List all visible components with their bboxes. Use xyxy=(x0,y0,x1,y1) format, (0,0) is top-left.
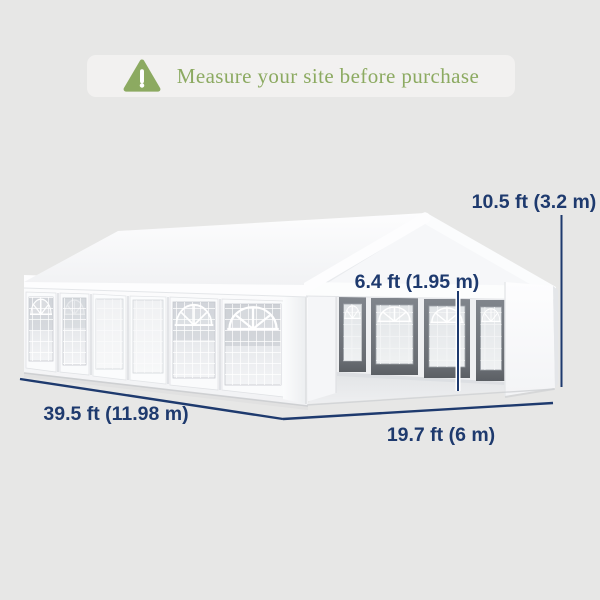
front-left-corner-post xyxy=(283,287,306,404)
dimension-label-side-height: 6.4 ft (1.95 m) xyxy=(355,271,480,293)
dimension-line-width xyxy=(283,403,553,419)
product-dimension-diagram: Measure your site before purchase xyxy=(0,0,600,600)
dimension-label-length: 39.5 ft (11.98 m) xyxy=(43,403,188,425)
dimension-label-total-height: 10.5 ft (3.2 m) xyxy=(472,191,597,213)
dimension-label-width: 19.7 ft (6 m) xyxy=(387,424,495,446)
front-right-door-panel xyxy=(505,282,558,397)
front-left-door-flap xyxy=(306,284,336,402)
canopy-tent-illustration: 10.5 ft (3.2 m) 6.4 ft (1.95 m) 39.5 ft … xyxy=(0,0,600,600)
